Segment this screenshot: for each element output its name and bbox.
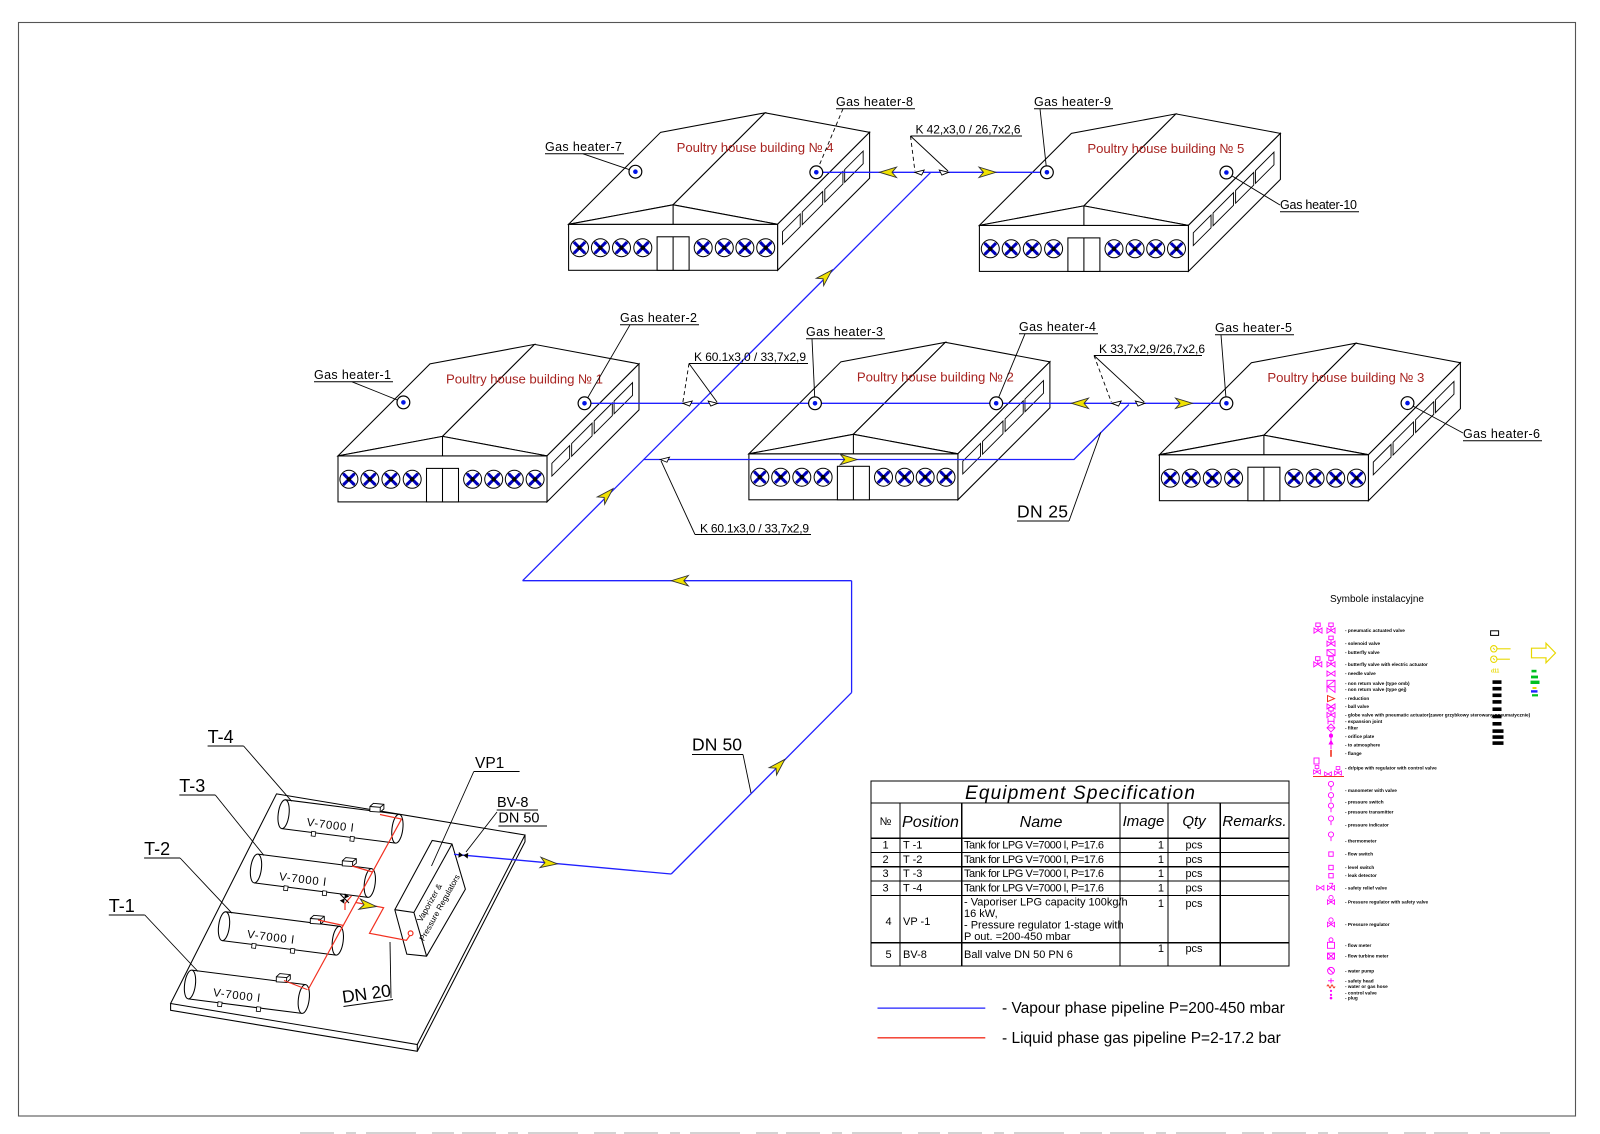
svg-text:- Vapour phase pipeline P=200-: - Vapour phase pipeline P=200-450 mbar	[1002, 1000, 1285, 1017]
svg-text:BV-8: BV-8	[903, 949, 927, 961]
svg-text:Poultry house building № 5: Poultry house building № 5	[1087, 141, 1244, 156]
svg-text:Gas heater-4: Gas heater-4	[1019, 320, 1096, 334]
svg-text:P out. =200-450 mbar: P out. =200-450 mbar	[964, 931, 1071, 943]
svg-text:Gas heater-1: Gas heater-1	[314, 368, 391, 382]
svg-text:- pneumatic actuated valve: - pneumatic actuated valve	[1345, 628, 1405, 633]
svg-text:T -4: T -4	[903, 882, 922, 894]
svg-text:Gas heater-8: Gas heater-8	[836, 95, 913, 109]
svg-text:Gas heater-7: Gas heater-7	[545, 140, 622, 154]
svg-text:3: 3	[882, 868, 888, 880]
svg-text:- filter: - filter	[1345, 725, 1358, 730]
svg-text:Gas heater-2: Gas heater-2	[620, 311, 697, 325]
svg-text:VP -1: VP -1	[903, 916, 930, 928]
svg-text:Tank for LPG V=7000 l, P=17.6: Tank for LPG V=7000 l, P=17.6	[964, 868, 1104, 880]
svg-text:- safety relief valve: - safety relief valve	[1345, 885, 1387, 890]
svg-text:1: 1	[1158, 943, 1164, 955]
svg-text:- flow meter: - flow meter	[1345, 943, 1371, 948]
svg-text:1: 1	[882, 840, 888, 852]
svg-text:- butterfly valve: - butterfly valve	[1345, 650, 1380, 655]
svg-text:T-3: T-3	[179, 776, 205, 796]
svg-text:5: 5	[886, 949, 892, 961]
svg-text:- globe valve with pneumatic: - globe valve with pneumatic actuator(za…	[1345, 713, 1531, 718]
svg-text:Gas heater-5: Gas heater-5	[1215, 321, 1292, 335]
svg-text:Remarks.: Remarks.	[1222, 813, 1286, 830]
svg-text:pcs: pcs	[1185, 854, 1203, 866]
svg-text:pcs: pcs	[1185, 840, 1203, 852]
svg-text:- level switch: - level switch	[1345, 865, 1374, 870]
svg-text:BV-8: BV-8	[497, 795, 528, 811]
svg-text:- safety head: - safety head	[1345, 978, 1374, 983]
svg-text:2: 2	[882, 854, 888, 866]
svg-text:- Pressure regulator: - Pressure regulator	[1345, 922, 1390, 927]
svg-text:- non return valve (type omb): - non return valve (type omb)	[1345, 681, 1410, 686]
svg-text:Qty: Qty	[1182, 813, 1207, 830]
svg-text:- pressure switch: - pressure switch	[1345, 799, 1384, 804]
svg-text:- Pressure regulator with saf: - Pressure regulator with safety valve	[1345, 900, 1429, 905]
svg-text:K 60.1x3,0 / 33,7x2,9: K 60.1x3,0 / 33,7x2,9	[694, 350, 806, 364]
svg-text:Equipment Specification: Equipment Specification	[965, 783, 1195, 804]
svg-text:№: №	[880, 816, 892, 828]
svg-text:- pressure indicator: - pressure indicator	[1345, 823, 1389, 828]
svg-text:- thermometer: - thermometer	[1345, 839, 1377, 844]
svg-text:1: 1	[1158, 854, 1164, 866]
svg-text:Name: Name	[1020, 814, 1063, 831]
svg-text:- plug: - plug	[1345, 996, 1358, 1001]
svg-text:- Pressure regulator 1-stage: - Pressure regulator 1-stage with	[964, 920, 1124, 932]
svg-text:VP1: VP1	[475, 755, 504, 772]
svg-text:DN 50: DN 50	[498, 811, 539, 827]
svg-text:1: 1	[1158, 840, 1164, 852]
svg-text:T -2: T -2	[903, 854, 922, 866]
svg-text:Ball valve DN 50 PN 6: Ball valve DN 50 PN 6	[964, 949, 1073, 961]
svg-text:d11: d11	[1491, 669, 1500, 675]
svg-text:- orifice plate: - orifice plate	[1345, 734, 1375, 739]
svg-text:1: 1	[1158, 882, 1164, 894]
svg-text:pcs: pcs	[1185, 943, 1203, 955]
svg-text:T-1: T-1	[109, 896, 135, 916]
svg-text:- water or gas hose: - water or gas hose	[1345, 984, 1388, 989]
svg-text:- leak detector: - leak detector	[1345, 873, 1377, 878]
svg-text:1: 1	[1158, 898, 1164, 910]
svg-text:- expansion joint: - expansion joint	[1345, 719, 1383, 724]
svg-text:Poultry house building № 1: Poultry house building № 1	[446, 371, 603, 386]
svg-text:pcs: pcs	[1185, 868, 1203, 880]
svg-text:- non return valve (type gej): - non return valve (type gej)	[1345, 687, 1407, 692]
svg-text:- pressure transmitter: - pressure transmitter	[1345, 810, 1394, 815]
svg-text:- to atmosphere: - to atmosphere	[1345, 743, 1381, 748]
svg-text:- solenoid valve: - solenoid valve	[1345, 641, 1381, 646]
svg-text:DN 25: DN 25	[1017, 502, 1068, 522]
svg-text:Position: Position	[902, 814, 959, 831]
svg-text:- needle valve: - needle valve	[1345, 671, 1376, 676]
svg-text:4: 4	[886, 916, 892, 928]
svg-text:Symbole instalacyjne: Symbole instalacyjne	[1330, 594, 1424, 605]
svg-text:1: 1	[1158, 868, 1164, 880]
svg-text:Poultry house building № 2: Poultry house building № 2	[857, 369, 1014, 384]
svg-text:- water pump: - water pump	[1345, 968, 1374, 973]
svg-text:3: 3	[882, 882, 888, 894]
svg-text:K 60.1x3,0 / 33,7x2,9: K 60.1x3,0 / 33,7x2,9	[700, 522, 809, 536]
svg-text:Gas heater-6: Gas heater-6	[1463, 427, 1540, 441]
svg-text:- manometer with valve: - manometer with valve	[1345, 788, 1397, 793]
svg-text:pcs: pcs	[1185, 882, 1203, 894]
svg-text:Image: Image	[1123, 813, 1165, 830]
svg-text:Gas heater-9: Gas heater-9	[1034, 95, 1111, 109]
svg-text:pcs: pcs	[1185, 898, 1203, 910]
svg-text:T-2: T-2	[144, 839, 170, 859]
svg-text:Poultry house building № 4: Poultry house building № 4	[677, 140, 834, 155]
svg-text:Tank for LPG V=7000 l, P=17.6: Tank for LPG V=7000 l, P=17.6	[964, 840, 1104, 852]
svg-text:- flow turbine meter: - flow turbine meter	[1345, 954, 1389, 959]
svg-text:Poultry house building № 3: Poultry house building № 3	[1267, 370, 1424, 385]
svg-text:K 33,7x2,9/26,7x2,6: K 33,7x2,9/26,7x2,6	[1099, 342, 1205, 356]
svg-text:- reduction: - reduction	[1345, 696, 1369, 701]
svg-text:K 42,x3,0 / 26,7x2,6: K 42,x3,0 / 26,7x2,6	[916, 123, 1021, 137]
svg-text:- butterfly valve with electr: - butterfly valve with electric actuator	[1345, 662, 1428, 667]
svg-text:- Vaporiser LPG capacity 100kg: - Vaporiser LPG capacity 100kg/h	[964, 897, 1128, 909]
svg-text:Gas heater-3: Gas heater-3	[806, 325, 883, 339]
svg-text:- Liquid phase gas pipeline P=: - Liquid phase gas pipeline P=2-17.2 bar	[1002, 1030, 1281, 1047]
svg-text:16 kW,: 16 kW,	[964, 908, 998, 920]
svg-text:Gas heater-10: Gas heater-10	[1280, 198, 1357, 212]
svg-text:T -1: T -1	[903, 840, 922, 852]
svg-text:- flow switch: - flow switch	[1345, 852, 1373, 857]
svg-text:DN 50: DN 50	[692, 735, 742, 755]
svg-text:- flange: - flange	[1345, 751, 1362, 756]
svg-text:Tank for LPG V=7000 l, P=17.6: Tank for LPG V=7000 l, P=17.6	[964, 882, 1104, 894]
svg-text:T-4: T-4	[208, 727, 234, 747]
svg-text:- ball valve: - ball valve	[1345, 704, 1369, 709]
svg-text:T -3: T -3	[903, 868, 922, 880]
svg-text:Tank for LPG V=7000 l, P=17.6: Tank for LPG V=7000 l, P=17.6	[964, 854, 1104, 866]
svg-text:- dr/pipe with regulator with: - dr/pipe with regulator with control va…	[1345, 766, 1437, 771]
